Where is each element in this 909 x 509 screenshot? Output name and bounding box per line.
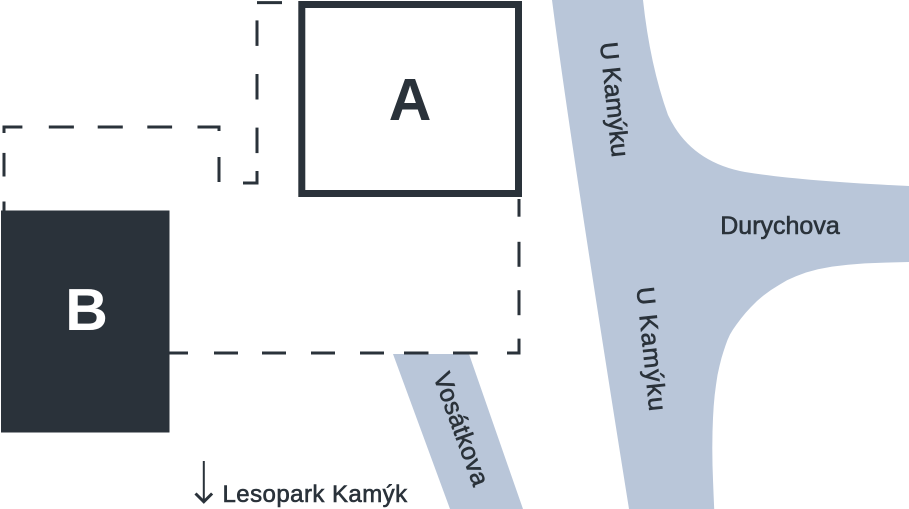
svg-text:A: A (389, 67, 432, 133)
svg-text:Durychova: Durychova (720, 212, 840, 240)
svg-text:Lesopark Kamýk: Lesopark Kamýk (223, 481, 409, 508)
svg-text:B: B (65, 277, 108, 343)
